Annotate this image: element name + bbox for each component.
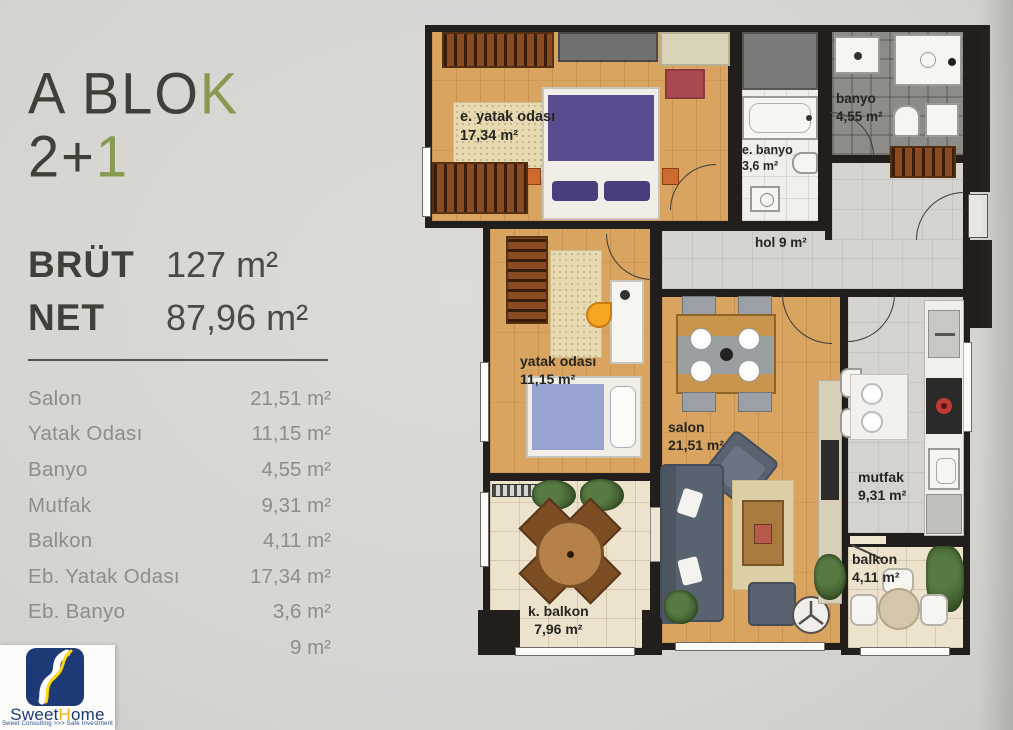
room-label-kitchen: mutfak 9,31 m² bbox=[858, 468, 906, 504]
room-label-master-bedroom: e. yatak odası 17,34 m² bbox=[460, 108, 555, 146]
desk-lamp bbox=[620, 290, 630, 300]
hall-cabinet bbox=[890, 146, 956, 178]
entry-door-frame bbox=[968, 194, 988, 238]
dining-chair bbox=[682, 392, 716, 412]
window-bedroom-left bbox=[480, 362, 489, 442]
nightstand bbox=[662, 168, 679, 185]
balcony-table bbox=[878, 588, 920, 630]
room-label-ensuite-bath: e. banyo 3,6 m² bbox=[742, 142, 793, 175]
ottoman bbox=[665, 69, 705, 99]
window-kitchen-right bbox=[963, 342, 972, 432]
kitchen-table bbox=[850, 374, 908, 440]
gross-area-row: BRÜT127 m² bbox=[28, 242, 308, 295]
divider-line bbox=[28, 359, 328, 361]
shower-head bbox=[948, 58, 956, 66]
gross-net-area: BRÜT127 m² NET87,96 m² bbox=[28, 242, 308, 348]
desk bbox=[610, 280, 644, 364]
bed-pillow bbox=[552, 181, 598, 201]
wardrobe-master bbox=[558, 32, 658, 62]
area-row-banyo: Banyo4,55 m² bbox=[28, 452, 331, 488]
net-area-row: NET87,96 m² bbox=[28, 295, 308, 348]
burner-center bbox=[941, 403, 947, 409]
area-row-mutfak: Mutfak9,31 m² bbox=[28, 488, 331, 524]
bathtub-faucet bbox=[806, 115, 812, 121]
window-closed-balcony-bottom bbox=[515, 647, 635, 656]
dining-chair bbox=[738, 392, 772, 412]
kitchen-sink bbox=[928, 448, 960, 490]
bathtub-basin bbox=[749, 103, 811, 133]
closet-master bbox=[660, 32, 730, 66]
single-bed-blanket bbox=[532, 384, 604, 450]
window-living-bottom bbox=[675, 642, 825, 651]
center-bowl bbox=[720, 348, 733, 361]
bookshelf-master-top bbox=[442, 32, 554, 68]
area-row-salon: Salon21,51 m² bbox=[28, 381, 331, 417]
room-label-bathroom: banyo 4,55 m² bbox=[836, 90, 883, 125]
bed-blanket bbox=[548, 95, 654, 161]
bathtub bbox=[742, 96, 818, 140]
bookshelf-master-bottom bbox=[432, 162, 528, 214]
bathroom-sink bbox=[834, 36, 880, 74]
plate bbox=[861, 383, 883, 405]
dining-table bbox=[676, 314, 776, 394]
plate bbox=[738, 328, 760, 350]
area-row-eb-banyo: Eb. Banyo3,6 m² bbox=[28, 595, 331, 631]
coffee-table bbox=[742, 500, 784, 566]
single-bed-pillow bbox=[610, 386, 636, 448]
brand-tagline: Sweet Consulting >>> Safe Investment bbox=[0, 721, 115, 727]
dining-chair bbox=[682, 296, 716, 316]
dining-chair bbox=[738, 296, 772, 316]
sink-basin bbox=[936, 458, 956, 484]
appliance-handle bbox=[935, 333, 955, 336]
room-label-hall: hol 9 m² bbox=[755, 234, 807, 252]
block-title: A BLOK 2+1 bbox=[28, 62, 239, 188]
block-title-line2: 2+1 bbox=[28, 125, 239, 188]
swoosh-s-icon bbox=[26, 648, 84, 706]
sink-drain bbox=[854, 52, 862, 60]
plant bbox=[814, 554, 846, 600]
table-center bbox=[567, 551, 574, 558]
washing-machine bbox=[750, 186, 780, 212]
plate bbox=[738, 360, 760, 382]
washer-drum bbox=[760, 193, 774, 207]
window-master-left bbox=[422, 147, 431, 217]
sofa-pillow bbox=[677, 556, 703, 586]
wall-right-upper bbox=[968, 25, 990, 192]
plant bbox=[664, 590, 698, 624]
plate bbox=[690, 328, 712, 350]
wall-entry-pillar bbox=[966, 240, 992, 328]
closet-ensuite bbox=[742, 32, 818, 90]
area-row-eb-yatak-odasi: Eb. Yatak Odası17,34 m² bbox=[28, 559, 331, 595]
round-patio-table bbox=[536, 520, 604, 588]
shower bbox=[894, 34, 962, 86]
window-closed-balcony-left bbox=[480, 492, 489, 567]
wardrobe-bedroom bbox=[506, 236, 548, 324]
tv bbox=[821, 440, 839, 500]
room-label-balcony: balkon 4,11 m² bbox=[852, 550, 899, 586]
room-area-list: Salon21,51 m² Yatak Odası11,15 m² Banyo4… bbox=[28, 381, 331, 666]
stove-burner bbox=[936, 398, 952, 414]
opening-kitchen-to-balcony bbox=[850, 536, 886, 544]
plate bbox=[690, 360, 712, 382]
double-bed bbox=[542, 87, 660, 220]
balcony-chair bbox=[920, 594, 948, 626]
toilet-bathroom bbox=[893, 105, 920, 137]
dishwasher bbox=[928, 310, 960, 358]
fridge bbox=[926, 494, 962, 534]
room-label-bedroom: yatak odası 11,15 m² bbox=[520, 352, 596, 388]
armchair-small bbox=[748, 582, 796, 626]
block-title-line1: A BLOK bbox=[28, 62, 239, 125]
toilet-ensuite bbox=[792, 152, 818, 174]
room-label-living: salon 21,51 m² bbox=[668, 418, 724, 454]
room-label-closed-balcony: k. balkon 7,96 m² bbox=[528, 602, 589, 638]
logo-mark bbox=[26, 648, 84, 706]
brochure-page: A BLOK 2+1 BRÜT127 m² NET87,96 m² Salon2… bbox=[0, 0, 1013, 730]
table-decor bbox=[754, 524, 772, 544]
area-row-balkon: Balkon4,11 m² bbox=[28, 523, 331, 559]
wall-pillar-bottom-mid bbox=[642, 610, 662, 655]
area-row-yatak-odasi: Yatak Odası11,15 m² bbox=[28, 417, 331, 453]
wall-corner-pillar-sw bbox=[478, 610, 520, 655]
sofa-pillow bbox=[676, 488, 703, 519]
floor-plan: e. yatak odası 17,34 m² e. banyo 3,6 m² … bbox=[420, 12, 1006, 667]
bed-pillow bbox=[604, 181, 650, 201]
bathroom-cabinet bbox=[925, 103, 959, 137]
desk-chair bbox=[586, 302, 612, 328]
stove bbox=[926, 378, 962, 434]
balcony-chair bbox=[850, 594, 878, 626]
plate bbox=[861, 411, 883, 433]
shower-drain bbox=[920, 52, 936, 68]
window-balcony-bottom bbox=[860, 647, 950, 656]
company-logo: SweetHome Sweet Consulting >>> Safe Inve… bbox=[0, 645, 115, 730]
